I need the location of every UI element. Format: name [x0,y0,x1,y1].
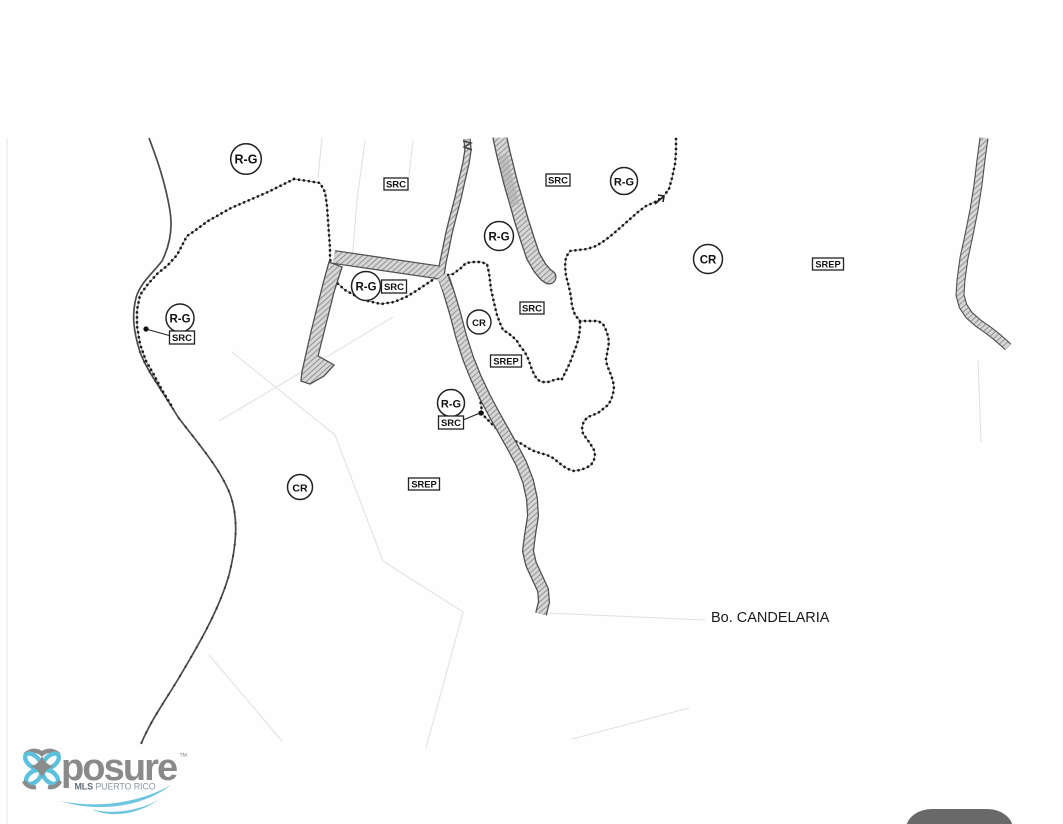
svg-text:R-G: R-G [441,399,461,411]
svg-text:CR: CR [700,255,717,267]
svg-text:R-G: R-G [488,232,509,244]
svg-text:SREP: SREP [493,357,518,367]
svg-text:SREP: SREP [411,480,436,490]
svg-text:R-G: R-G [169,314,190,326]
svg-text:SRC: SRC [548,176,568,187]
svg-text:R-G: R-G [235,153,258,167]
svg-text:SRC: SRC [172,333,192,344]
svg-text:SRC: SRC [441,418,461,429]
svg-text:SRC: SRC [384,282,404,293]
svg-text:MLS PUERTO RICO: MLS PUERTO RICO [75,782,156,792]
svg-text:R-G: R-G [614,177,634,189]
svg-text:SRC: SRC [522,304,542,315]
svg-text:™: ™ [179,751,188,761]
svg-text:CR: CR [292,483,308,495]
svg-text:SRC: SRC [386,180,406,191]
svg-text:Bo. CANDELARIA: Bo. CANDELARIA [711,610,830,626]
svg-text:CR: CR [472,318,486,329]
svg-text:R-G: R-G [355,282,376,294]
svg-text:SREP: SREP [815,260,840,270]
